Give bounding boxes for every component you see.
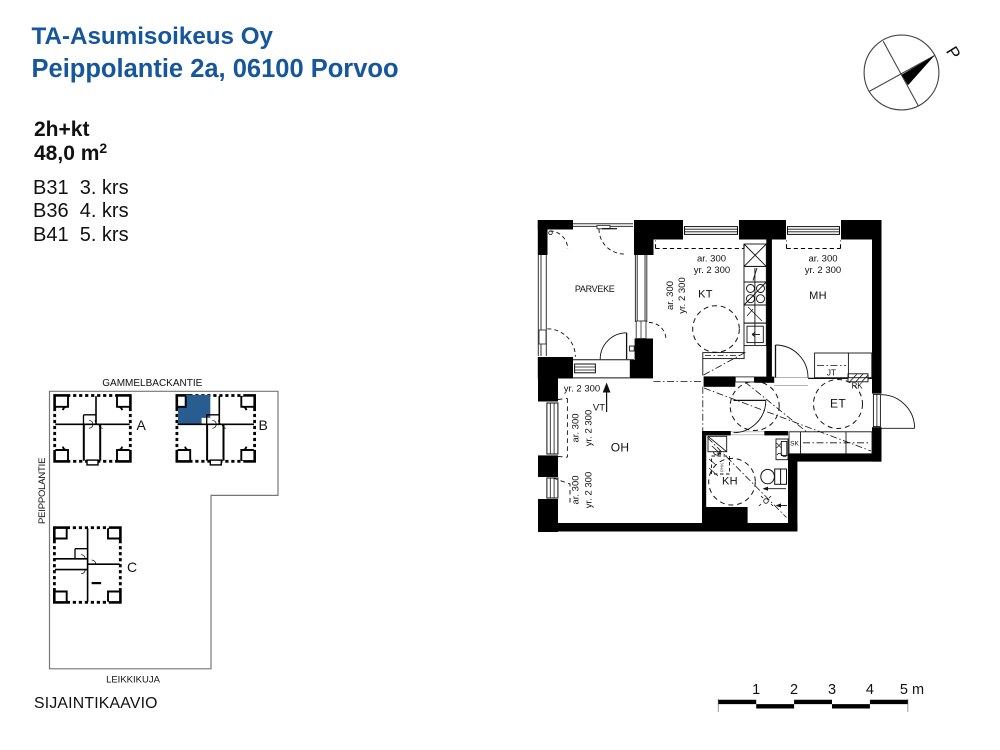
svg-text:yr. 2 300: yr. 2 300 xyxy=(677,277,688,313)
svg-text:yr. 2 300: yr. 2 300 xyxy=(694,265,730,276)
svg-text:ET: ET xyxy=(830,396,846,410)
svg-text:A: A xyxy=(137,417,147,433)
svg-text:KT: KT xyxy=(698,289,713,301)
svg-text:LEIKKIKUJA: LEIKKIKUJA xyxy=(106,675,161,686)
svg-text:GAMMELBACKANTIE: GAMMELBACKANTIE xyxy=(102,378,202,389)
svg-text:OH: OH xyxy=(611,441,630,455)
svg-text:ar. 300: ar. 300 xyxy=(571,413,582,442)
svg-text:yr. 2 300: yr. 2 300 xyxy=(584,410,595,446)
svg-text:MH: MH xyxy=(809,290,827,302)
svg-text:PHK: PHK xyxy=(720,463,725,472)
svg-text:SK: SK xyxy=(790,440,799,447)
svg-text:KH: KH xyxy=(722,476,738,488)
svg-text:B: B xyxy=(259,417,268,433)
svg-text:C: C xyxy=(127,559,137,575)
svg-text:yr. 2 300: yr. 2 300 xyxy=(564,384,600,395)
svg-text:5 m: 5 m xyxy=(900,682,924,698)
svg-text:P: P xyxy=(942,43,964,63)
svg-text:yr. 2 300: yr. 2 300 xyxy=(805,265,841,276)
svg-text:ar. 300: ar. 300 xyxy=(665,281,676,310)
svg-text:4: 4 xyxy=(866,682,874,698)
svg-text:ar. 300: ar. 300 xyxy=(697,254,726,265)
svg-text:1: 1 xyxy=(752,682,760,698)
svg-text:3: 3 xyxy=(828,682,836,698)
svg-text:JT: JT xyxy=(827,368,836,378)
svg-text:PEIPPOLANTIE: PEIPPOLANTIE xyxy=(37,458,48,524)
svg-text:2: 2 xyxy=(790,682,798,698)
svg-text:ar. 300: ar. 300 xyxy=(808,254,837,265)
svg-text:VT: VT xyxy=(593,403,605,414)
svg-text:RK: RK xyxy=(851,381,863,390)
svg-text:ar. 300: ar. 300 xyxy=(571,475,582,504)
svg-text:PARVEKE: PARVEKE xyxy=(575,284,615,294)
svg-text:yr. 2 300: yr. 2 300 xyxy=(584,472,595,508)
